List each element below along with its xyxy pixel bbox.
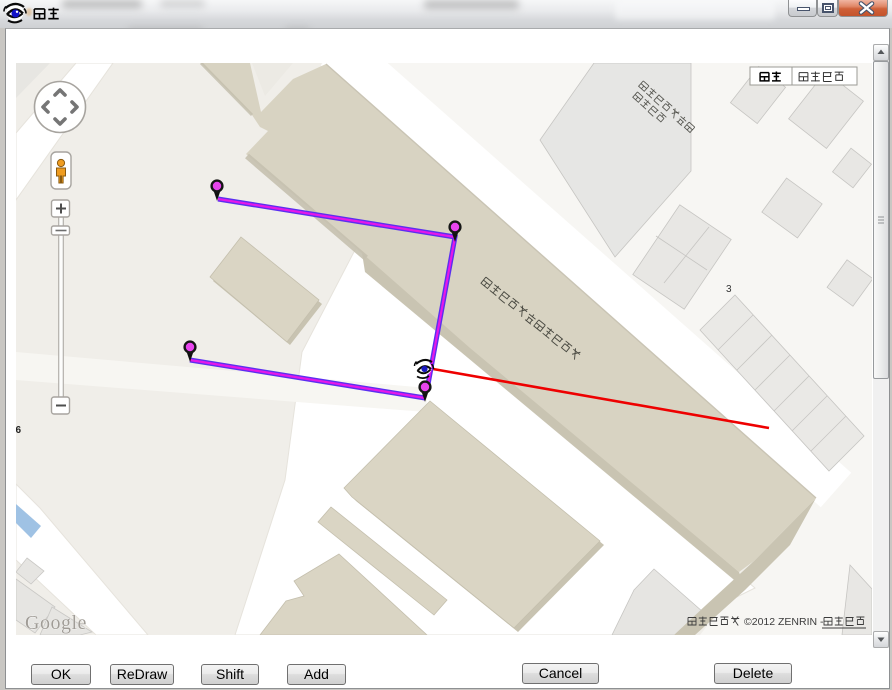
svg-text:Google: Google [25, 612, 87, 634]
svg-text:16: 16 [16, 425, 22, 436]
svg-text:3: 3 [726, 284, 732, 295]
svg-text:©2012 ZENRIN -: ©2012 ZENRIN - [744, 616, 824, 628]
